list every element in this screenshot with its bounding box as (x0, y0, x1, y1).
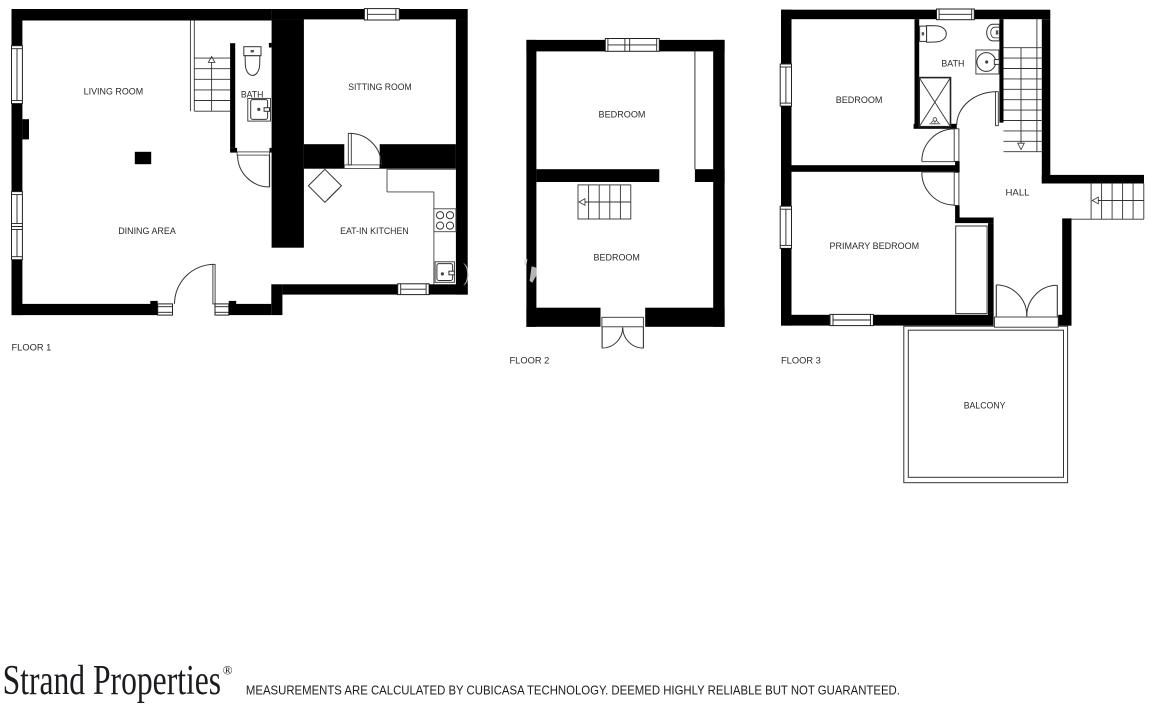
svg-text:MEASUREMENTS ARE CALCULATED BY: MEASUREMENTS ARE CALCULATED BY CUBICASA … (246, 683, 900, 698)
svg-text:LIVING ROOM: LIVING ROOM (84, 86, 144, 96)
svg-text:PRIMARY BEDROOM: PRIMARY BEDROOM (830, 241, 920, 251)
svg-text:FLOOR 2: FLOOR 2 (510, 356, 550, 366)
svg-text:BEDROOM: BEDROOM (594, 252, 640, 262)
svg-text:BEDROOM: BEDROOM (836, 95, 883, 105)
svg-text:®: ® (223, 662, 233, 677)
svg-text:Strand Properties: Strand Properties (3, 657, 222, 704)
svg-text:FLOOR 3: FLOOR 3 (781, 356, 821, 366)
svg-text:BATH: BATH (941, 59, 964, 69)
svg-text:SITTING ROOM: SITTING ROOM (348, 82, 412, 92)
svg-text:EAT-IN KITCHEN: EAT-IN KITCHEN (340, 226, 409, 236)
svg-text:BALCONY: BALCONY (964, 400, 1006, 410)
svg-text:FLOOR 1: FLOOR 1 (12, 343, 52, 353)
svg-text:BATH: BATH (241, 89, 264, 99)
svg-text:BEDROOM: BEDROOM (599, 109, 646, 119)
svg-text:DINING AREA: DINING AREA (118, 226, 176, 236)
svg-text:HALL: HALL (1006, 188, 1030, 198)
